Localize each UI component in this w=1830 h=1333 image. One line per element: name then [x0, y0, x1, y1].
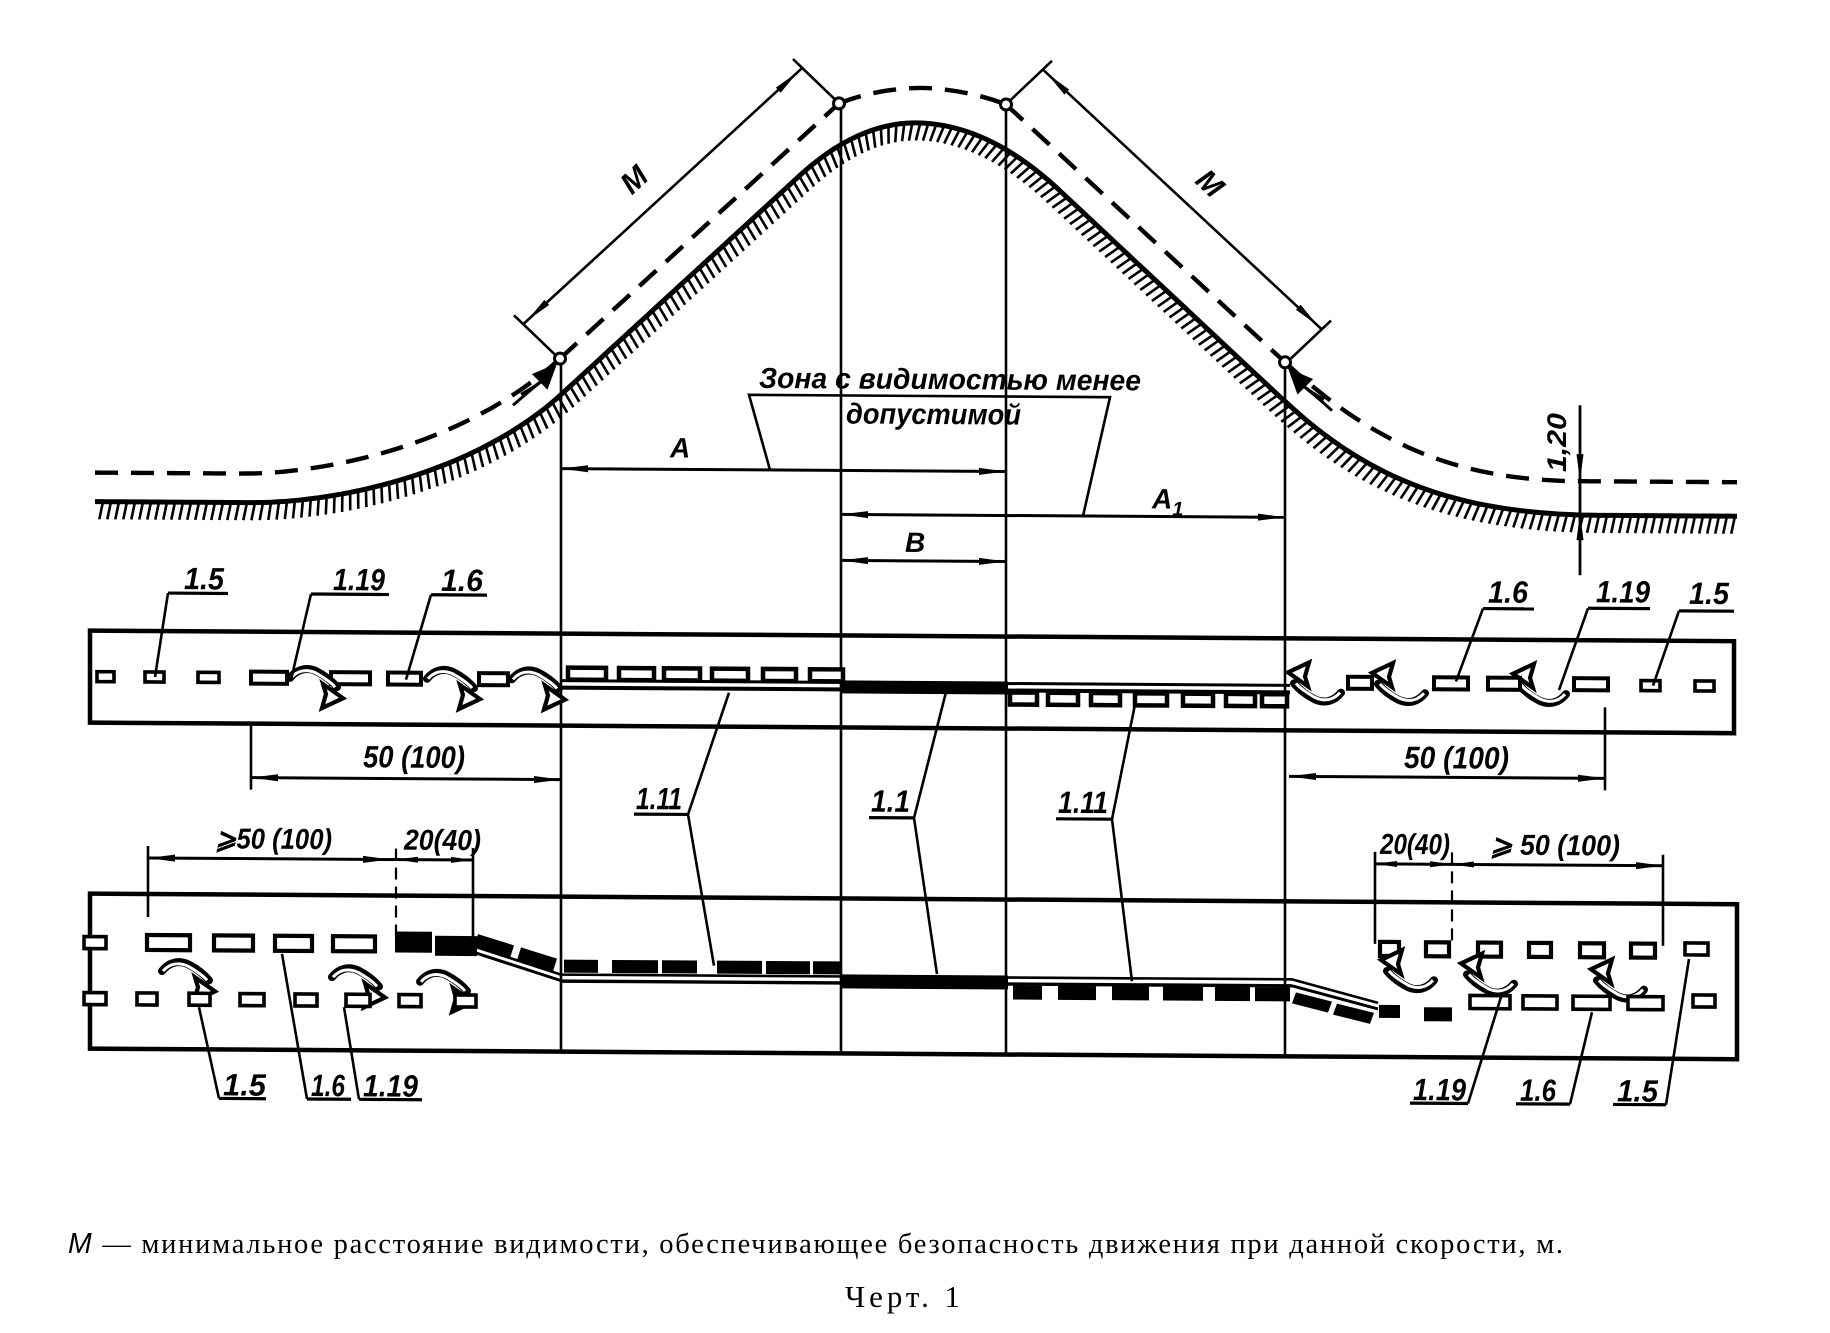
svg-text:⩾ 50 (100): ⩾ 50 (100)	[1490, 830, 1620, 863]
svg-text:1.19: 1.19	[1413, 1072, 1467, 1107]
svg-text:М — минимальное расстояние вид: М — минимальное расстояние видимости, об…	[68, 1228, 1563, 1260]
svg-text:1.19: 1.19	[363, 1068, 419, 1103]
svg-text:1.11: 1.11	[1058, 785, 1108, 820]
svg-text:1.5: 1.5	[223, 1067, 267, 1102]
svg-text:1.5: 1.5	[1689, 576, 1730, 611]
svg-text:1.19: 1.19	[333, 562, 386, 597]
svg-text:50 (100): 50 (100)	[1404, 740, 1509, 776]
svg-text:⩾50 (100): ⩾50 (100)	[215, 823, 332, 856]
svg-text:1.5: 1.5	[184, 561, 225, 596]
svg-text:A: A	[669, 432, 690, 463]
svg-text:1.6: 1.6	[441, 563, 484, 598]
svg-text:1.6: 1.6	[1520, 1073, 1557, 1108]
svg-text:1.1: 1.1	[871, 784, 910, 819]
svg-text:Зона с видимостью менее: Зона с видимостью менее	[759, 363, 1141, 397]
svg-text:1.6: 1.6	[311, 1068, 346, 1103]
svg-text:1.11: 1.11	[636, 781, 682, 816]
svg-text:50 (100): 50 (100)	[363, 739, 465, 775]
svg-text:1.5: 1.5	[1617, 1073, 1659, 1108]
svg-text:В: В	[905, 527, 925, 558]
svg-text:допустимой: допустимой	[846, 398, 1021, 431]
svg-text:20(40): 20(40)	[403, 825, 481, 858]
svg-text:1,20: 1,20	[1542, 413, 1572, 472]
svg-text:1.6: 1.6	[1488, 575, 1529, 610]
svg-text:20(40): 20(40)	[1379, 829, 1450, 861]
svg-text:1.19: 1.19	[1596, 574, 1651, 609]
